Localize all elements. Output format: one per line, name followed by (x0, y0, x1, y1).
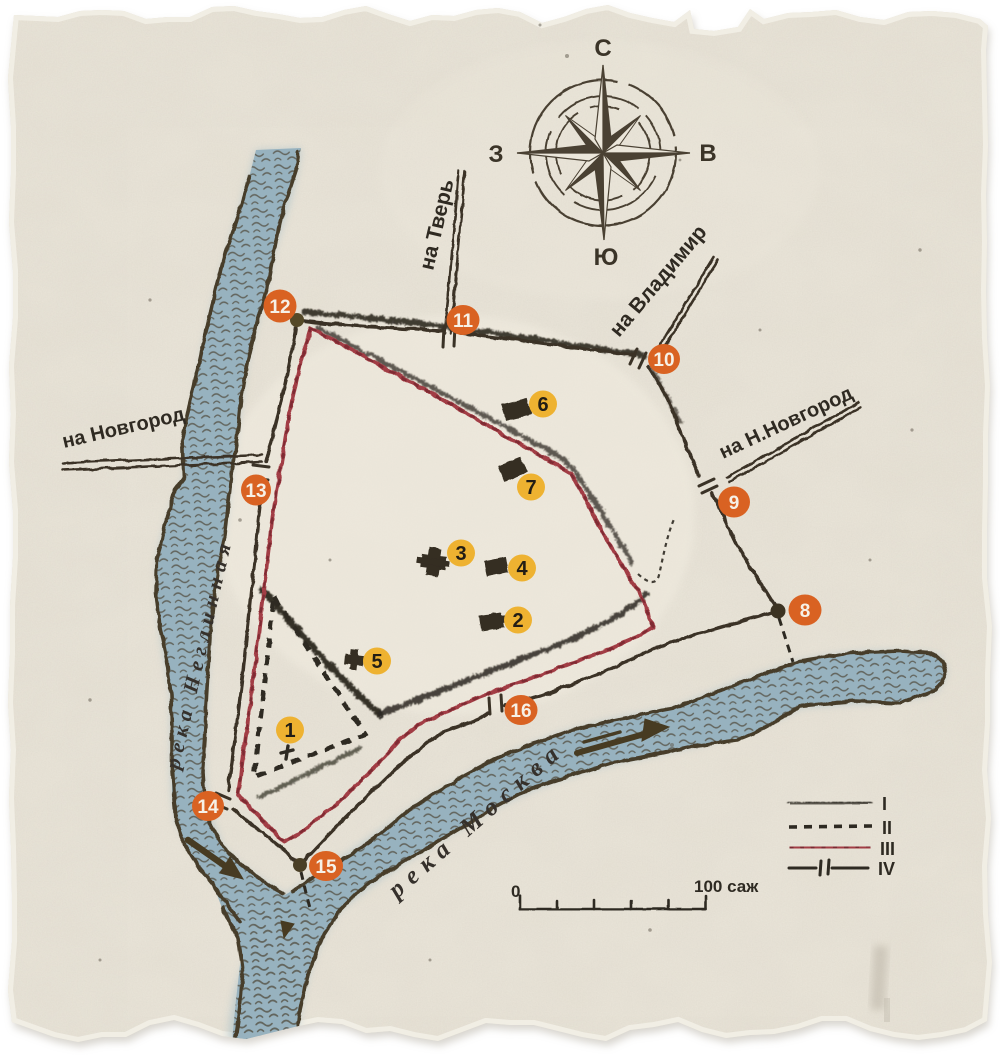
svg-text:3: 3 (455, 543, 466, 565)
svg-text:1: 1 (284, 720, 295, 742)
svg-text:Ю: Ю (594, 244, 619, 271)
svg-text:15: 15 (315, 857, 337, 878)
svg-text:В: В (699, 140, 716, 167)
svg-text:2: 2 (512, 610, 523, 632)
svg-text:7: 7 (525, 477, 536, 499)
svg-text:II: II (882, 818, 892, 838)
svg-text:I: I (882, 794, 887, 814)
svg-text:11: 11 (453, 311, 474, 332)
svg-text:100 саж: 100 саж (694, 877, 759, 896)
svg-text:0: 0 (511, 882, 520, 901)
svg-text:9: 9 (729, 493, 740, 514)
svg-text:С: С (594, 35, 611, 62)
svg-text:IV: IV (878, 859, 895, 879)
svg-text:8: 8 (800, 601, 811, 622)
svg-text:5: 5 (371, 651, 382, 673)
svg-text:III: III (880, 839, 895, 859)
svg-text:14: 14 (197, 797, 219, 818)
svg-text:13: 13 (245, 481, 266, 502)
svg-text:16: 16 (510, 701, 531, 722)
svg-text:12: 12 (269, 297, 290, 318)
svg-text:4: 4 (516, 558, 528, 580)
svg-text:10: 10 (653, 350, 674, 371)
svg-text:6: 6 (537, 394, 548, 416)
svg-text:З: З (488, 141, 503, 168)
